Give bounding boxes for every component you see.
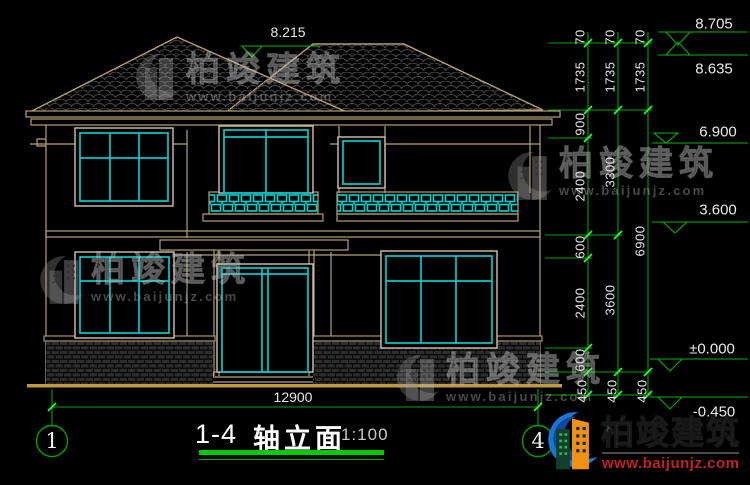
elevation-label: -0.450 <box>693 404 736 421</box>
cad-elevation-sheet: 柏竣建筑 www.baijunjz.com 柏竣建筑 www.baijunjz.… <box>0 0 750 485</box>
elevation-label: 8.635 <box>695 61 733 78</box>
elevation-label: 6.900 <box>699 124 737 141</box>
elevation-label: ±0.000 <box>689 341 735 358</box>
elevation-label: 3.600 <box>699 202 737 219</box>
elevation-labels-layer: 8.7058.6356.9003.600±0.000-0.450 <box>0 0 750 485</box>
elevation-label: 8.705 <box>695 16 733 33</box>
